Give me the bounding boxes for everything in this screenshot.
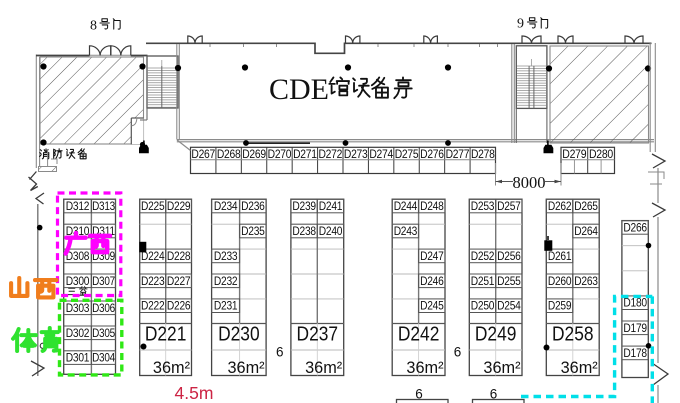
svg-text:D228: D228: [167, 249, 191, 263]
svg-text:6: 6: [276, 344, 284, 359]
svg-text:D269: D269: [242, 147, 266, 161]
svg-text:D260: D260: [548, 274, 572, 288]
svg-text:D259: D259: [548, 299, 572, 313]
svg-text:D307: D307: [92, 274, 115, 288]
svg-text:D255: D255: [497, 274, 521, 288]
svg-text:D236: D236: [241, 199, 265, 213]
svg-text:D276: D276: [420, 147, 444, 161]
svg-text:D313: D313: [92, 199, 115, 213]
svg-text:D270: D270: [268, 147, 292, 161]
svg-text:D254: D254: [497, 299, 521, 313]
svg-text:D257: D257: [497, 199, 521, 213]
svg-text:D221: D221: [145, 324, 187, 346]
svg-text:4.5m: 4.5m: [175, 383, 214, 403]
svg-text:D279: D279: [562, 147, 586, 161]
svg-text:D234: D234: [214, 199, 238, 213]
svg-text:D229: D229: [167, 199, 191, 213]
svg-text:D273: D273: [344, 147, 368, 161]
svg-text:D231: D231: [214, 299, 238, 313]
svg-text:D274: D274: [369, 147, 393, 161]
svg-text:D262: D262: [548, 199, 572, 213]
svg-text:D227: D227: [167, 274, 191, 288]
svg-text:D233: D233: [214, 249, 238, 263]
svg-text:D256: D256: [497, 249, 521, 263]
svg-text:D244: D244: [394, 199, 418, 213]
svg-text:D264: D264: [574, 224, 598, 238]
svg-text:D247: D247: [420, 249, 444, 263]
svg-text:6: 6: [490, 386, 498, 401]
svg-text:CDE: CDE: [269, 73, 329, 106]
svg-text:D179: D179: [623, 321, 647, 335]
svg-text:D306: D306: [92, 301, 115, 315]
svg-text:36m²: 36m²: [305, 359, 343, 377]
svg-text:D225: D225: [141, 199, 165, 213]
svg-text:D301: D301: [66, 351, 90, 365]
svg-text:D304: D304: [92, 351, 115, 365]
svg-text:D280: D280: [589, 147, 613, 161]
svg-text:D258: D258: [552, 324, 594, 346]
svg-text:D230: D230: [218, 324, 260, 346]
svg-text:D251: D251: [471, 274, 495, 288]
svg-text:36m²: 36m²: [153, 359, 191, 377]
svg-text:6: 6: [454, 344, 462, 359]
svg-text:D226: D226: [167, 299, 191, 313]
svg-text:D222: D222: [141, 299, 165, 313]
svg-text:D252: D252: [471, 249, 495, 263]
svg-text:D235: D235: [241, 224, 265, 238]
svg-text:D243: D243: [394, 224, 418, 238]
svg-text:36m²: 36m²: [483, 359, 521, 377]
svg-text:D272: D272: [318, 147, 342, 161]
svg-text:D277: D277: [446, 147, 470, 161]
svg-text:36m²: 36m²: [227, 359, 265, 377]
svg-text:36m²: 36m²: [406, 359, 444, 377]
svg-text:D302: D302: [66, 326, 90, 340]
svg-text:D246: D246: [420, 274, 444, 288]
svg-text:D303: D303: [66, 301, 90, 315]
svg-text:D242: D242: [398, 324, 440, 346]
svg-text:D178: D178: [623, 346, 647, 360]
svg-text:D263: D263: [574, 274, 598, 288]
svg-text:D265: D265: [574, 199, 598, 213]
svg-text:D232: D232: [214, 274, 238, 288]
svg-text:D250: D250: [471, 299, 495, 313]
svg-text:D312: D312: [66, 199, 90, 213]
svg-text:D271: D271: [293, 147, 317, 161]
svg-text:D266: D266: [623, 220, 647, 234]
svg-text:D239: D239: [292, 199, 316, 213]
svg-text:D268: D268: [217, 147, 241, 161]
svg-text:D237: D237: [297, 324, 339, 346]
svg-text:36m²: 36m²: [561, 359, 599, 377]
svg-text:D248: D248: [420, 199, 444, 213]
svg-text:D261: D261: [548, 249, 572, 263]
svg-text:D300: D300: [66, 274, 90, 288]
svg-text:D241: D241: [319, 199, 343, 213]
svg-text:D238: D238: [292, 224, 316, 238]
svg-text:D240: D240: [319, 224, 343, 238]
svg-text:D275: D275: [395, 147, 419, 161]
svg-text:8000: 8000: [513, 173, 546, 192]
svg-text:D249: D249: [475, 324, 517, 346]
svg-text:D267: D267: [191, 147, 215, 161]
svg-text:D245: D245: [420, 299, 444, 313]
svg-text:D223: D223: [141, 274, 165, 288]
svg-text:D278: D278: [471, 147, 495, 161]
svg-text:8: 8: [90, 19, 97, 34]
svg-text:D253: D253: [471, 199, 495, 213]
svg-text:D305: D305: [92, 326, 115, 340]
svg-text:9: 9: [517, 17, 524, 32]
svg-text:6: 6: [415, 386, 423, 401]
